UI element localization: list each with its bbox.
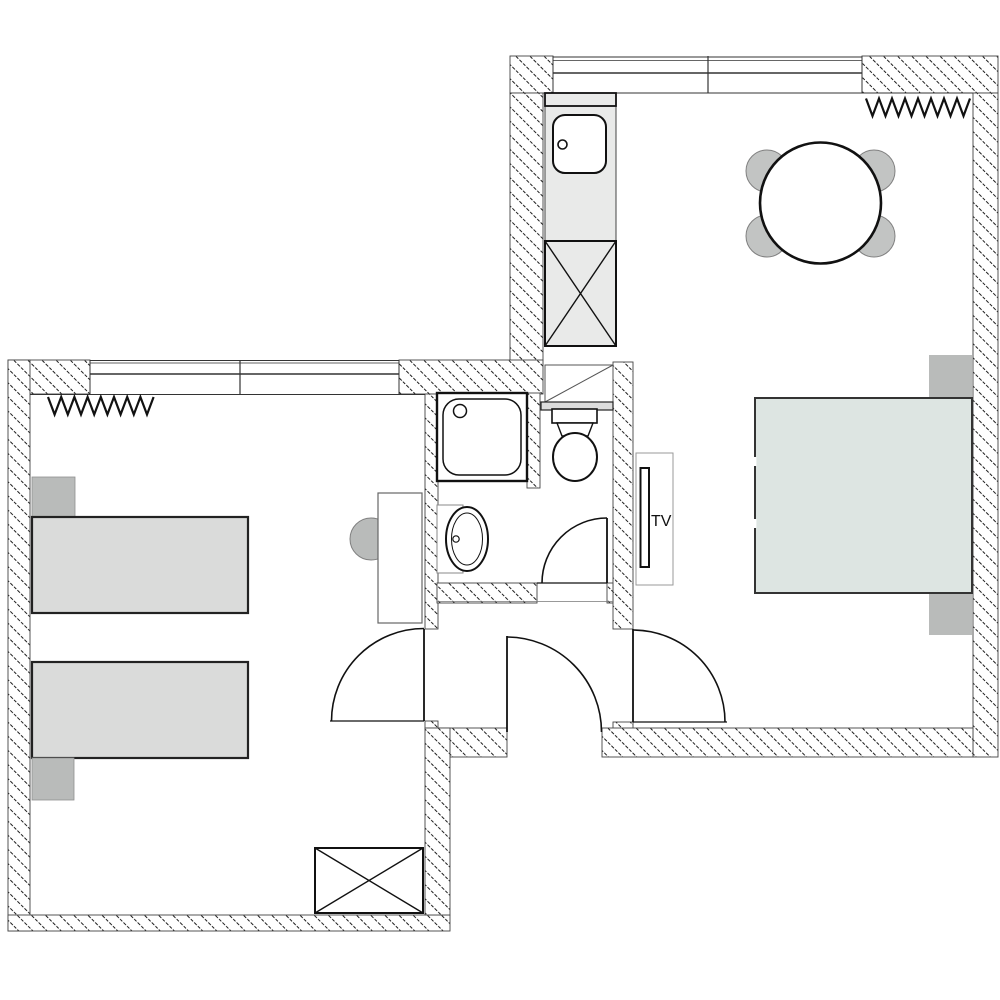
- nightstand-top: [929, 355, 972, 397]
- shower: [437, 393, 527, 481]
- kitchen-unit: [545, 93, 616, 346]
- wall-left-block-right-lower: [425, 728, 450, 915]
- pillow-bed1: [32, 477, 75, 517]
- bedroom-right: TV: [633, 355, 972, 722]
- shower-drain: [454, 405, 467, 418]
- single-bed-1: [32, 517, 248, 613]
- radiator-kitchen: [866, 99, 970, 117]
- bathroom: [437, 365, 613, 602]
- tv-screen: [641, 468, 650, 567]
- wall-top-right-of-window: [862, 56, 998, 93]
- dining-set: [746, 143, 895, 264]
- wall-left-block-left: [8, 360, 30, 931]
- basin-tap: [453, 536, 459, 542]
- toilet-bowl: [553, 433, 597, 481]
- wash-basin: [437, 505, 488, 573]
- tall-cabinet-crossed: [545, 241, 616, 346]
- double-bed: [755, 398, 972, 593]
- bathroom-door: [537, 518, 607, 583]
- pillow-bed2: [32, 758, 74, 800]
- wall-bathroom-bottom: [437, 583, 537, 603]
- double-bed-notch-1: [754, 457, 757, 466]
- desk: [378, 493, 422, 623]
- kitchen-counter-back: [545, 93, 616, 106]
- entry-door: [507, 636, 602, 732]
- wall-left-block-bottom: [8, 915, 450, 931]
- bedroom-right-door: [633, 629, 727, 722]
- wardrobe-crossed: [315, 848, 423, 913]
- toilet: [552, 409, 597, 481]
- wall-bottom-right: [602, 728, 973, 757]
- ventilation-duct: [545, 365, 613, 402]
- dining-table: [760, 143, 881, 264]
- wall-shower-strip: [527, 393, 540, 488]
- bedroom-left-door: [330, 629, 424, 722]
- nightstand-bottom: [929, 592, 972, 635]
- tv-label: TV: [651, 513, 672, 530]
- wall-top-left-of-window: [510, 56, 553, 93]
- radiator-left-bedroom: [48, 397, 154, 415]
- floor-plan-drawing: TV: [0, 0, 1000, 1000]
- wall-tv: TV: [636, 453, 673, 585]
- wall-left-block-top-b: [399, 360, 543, 394]
- bedroom-left: [32, 477, 424, 913]
- double-bed-notch-2: [754, 519, 757, 528]
- wall-bathroom-bottom-stub: [607, 583, 613, 603]
- wall-bathroom-right: [613, 362, 633, 629]
- toilet-tank: [552, 409, 597, 423]
- single-bed-2: [32, 662, 248, 758]
- kitchen-faucet: [558, 140, 567, 149]
- wall-right: [973, 93, 998, 757]
- wall-kitchen-left: [510, 93, 543, 361]
- floor-plan-page: TV: [0, 0, 1000, 1000]
